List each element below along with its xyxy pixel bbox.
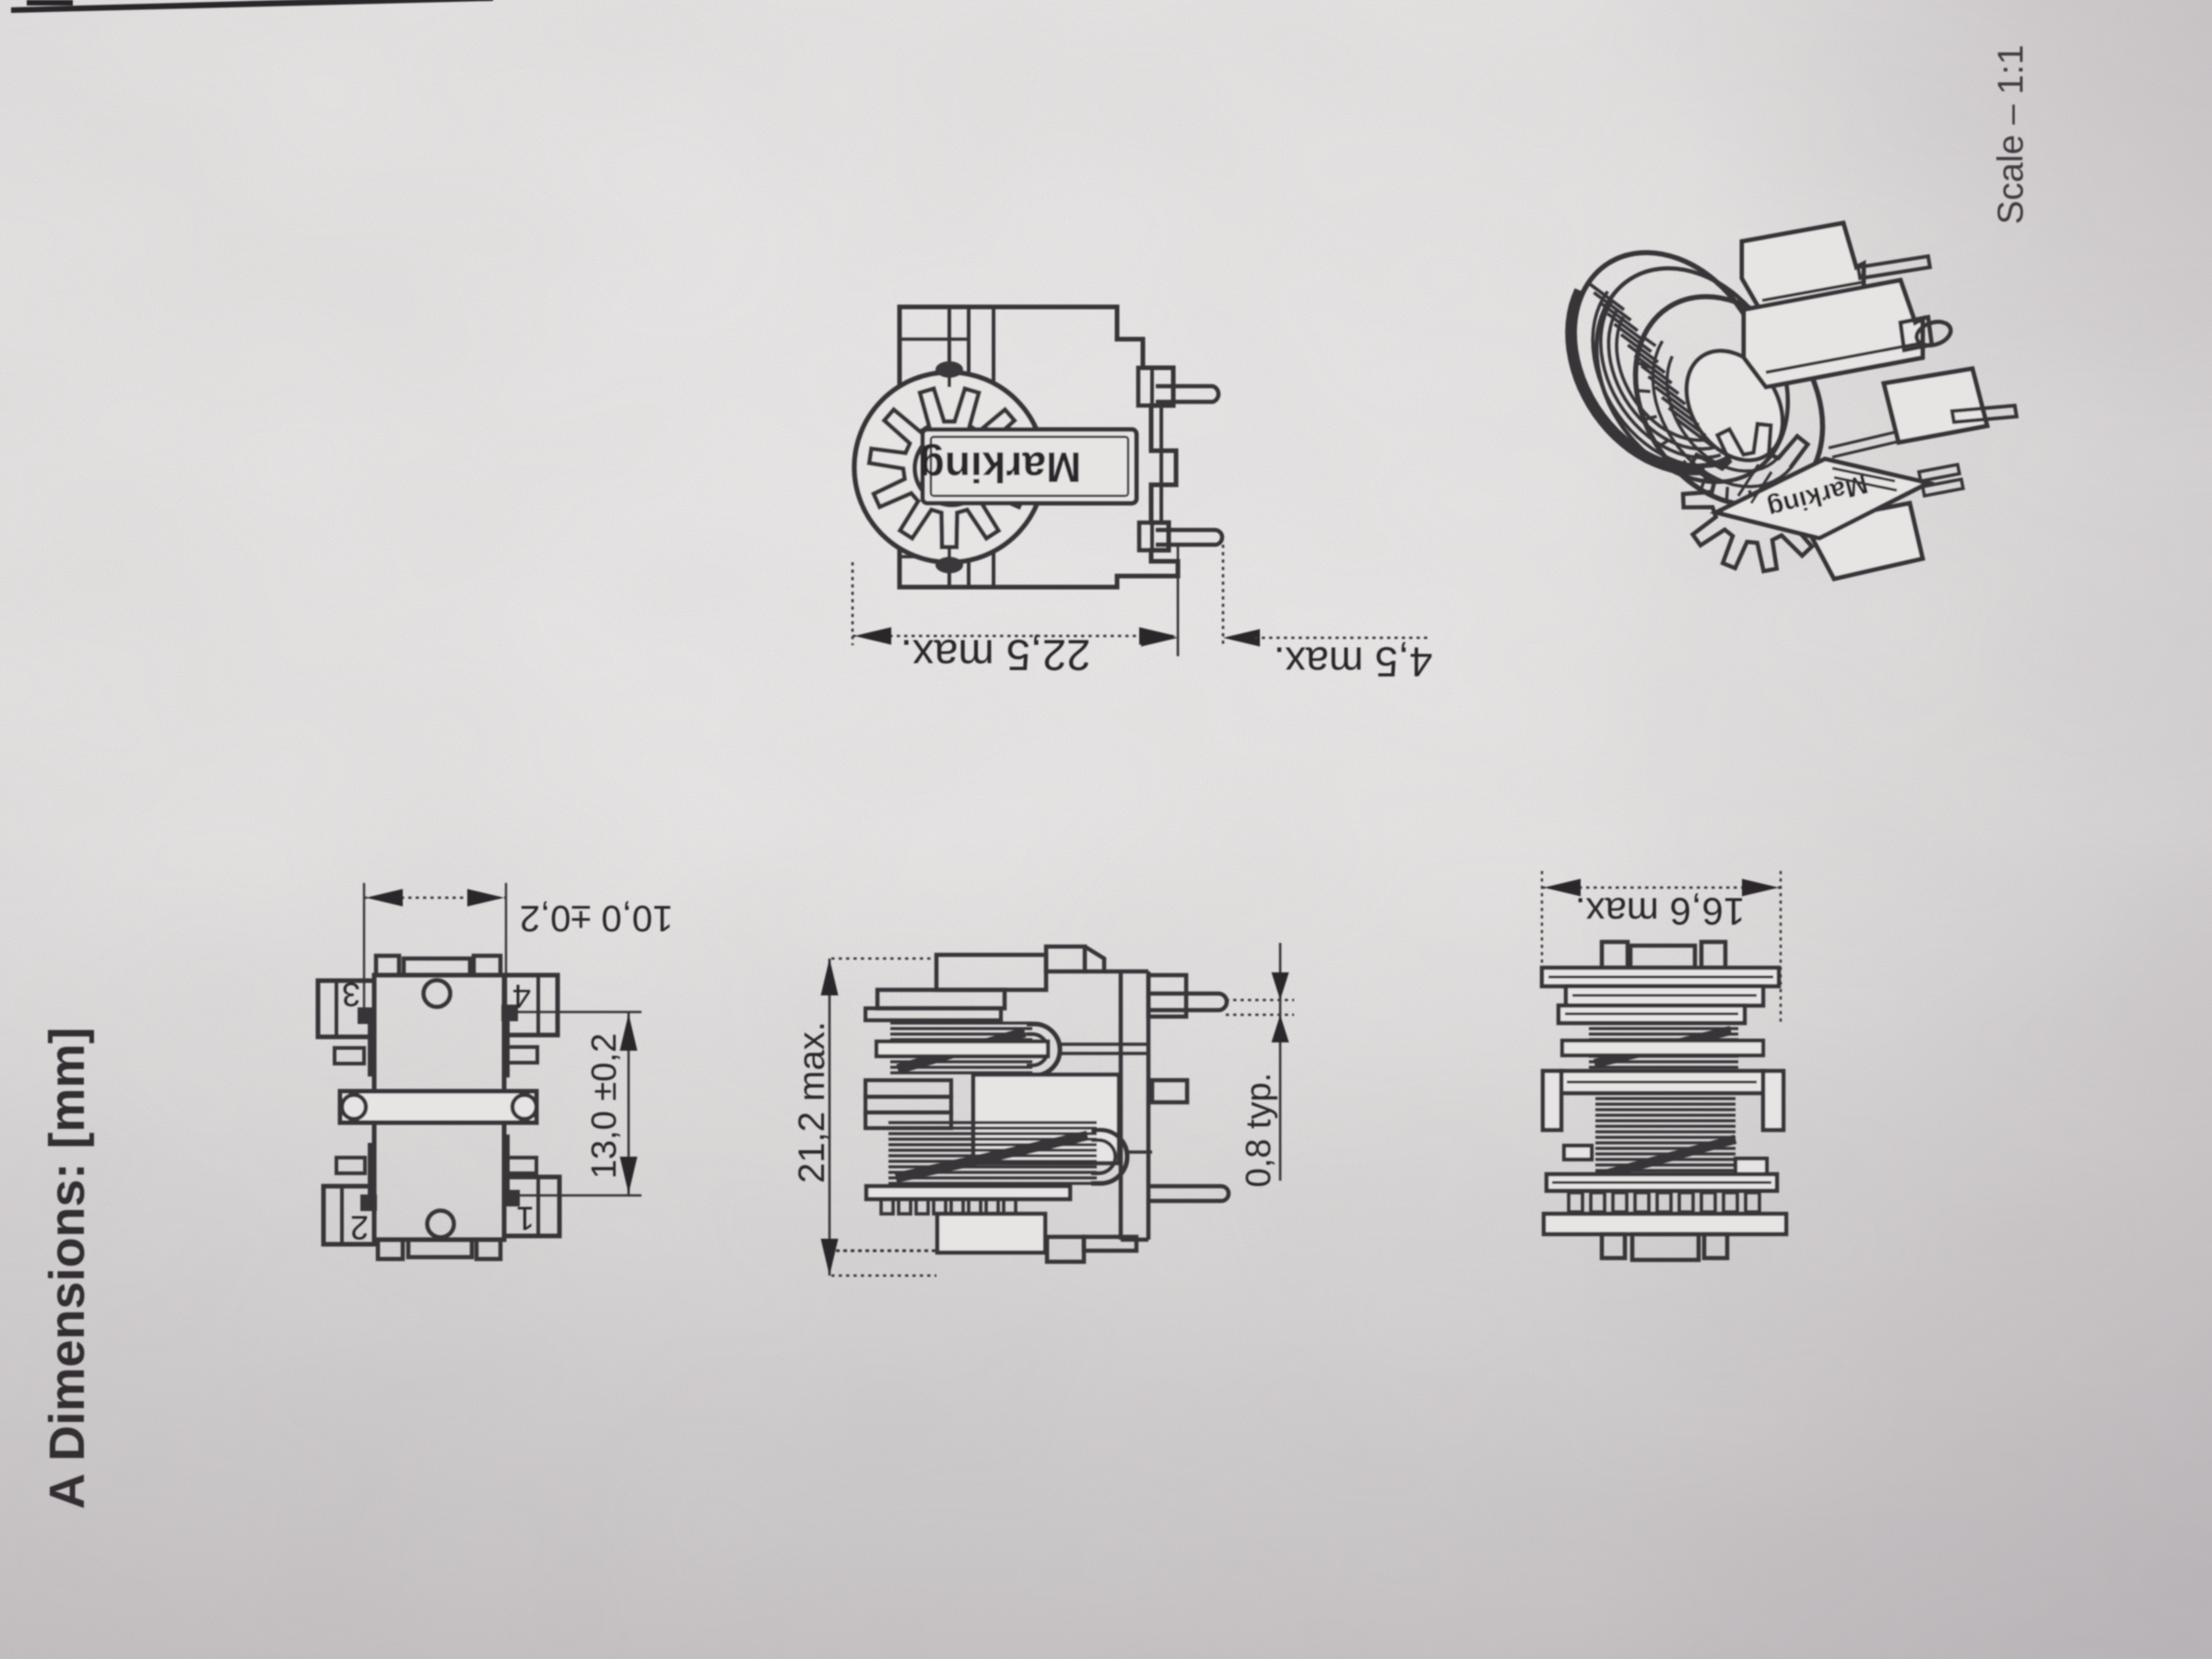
svg-text:1: 1 (516, 1200, 535, 1238)
svg-text:21,2 max.: 21,2 max. (792, 1021, 832, 1183)
svg-text:10,0 ±0,2: 10,0 ±0,2 (520, 898, 674, 938)
svg-text:Marking: Marking (919, 443, 1081, 491)
svg-text:Scale – 1:1: Scale – 1:1 (1992, 44, 2031, 224)
svg-text:4: 4 (512, 978, 531, 1016)
svg-text:13,0 ±0,2: 13,0 ±0,2 (585, 1033, 624, 1179)
svg-text:4,5 max.: 4,5 max. (1274, 639, 1433, 686)
svg-text:2: 2 (350, 1209, 369, 1247)
svg-text:3: 3 (342, 976, 360, 1014)
svg-text:22,5 max.: 22,5 max. (900, 631, 1090, 680)
svg-text:0,8 typ.: 0,8 typ. (1240, 1073, 1278, 1188)
svg-text:16,6 max.: 16,6 max. (1575, 890, 1745, 934)
svg-text:A Dimensions: [mm]: A Dimensions: [mm] (40, 1027, 95, 1509)
